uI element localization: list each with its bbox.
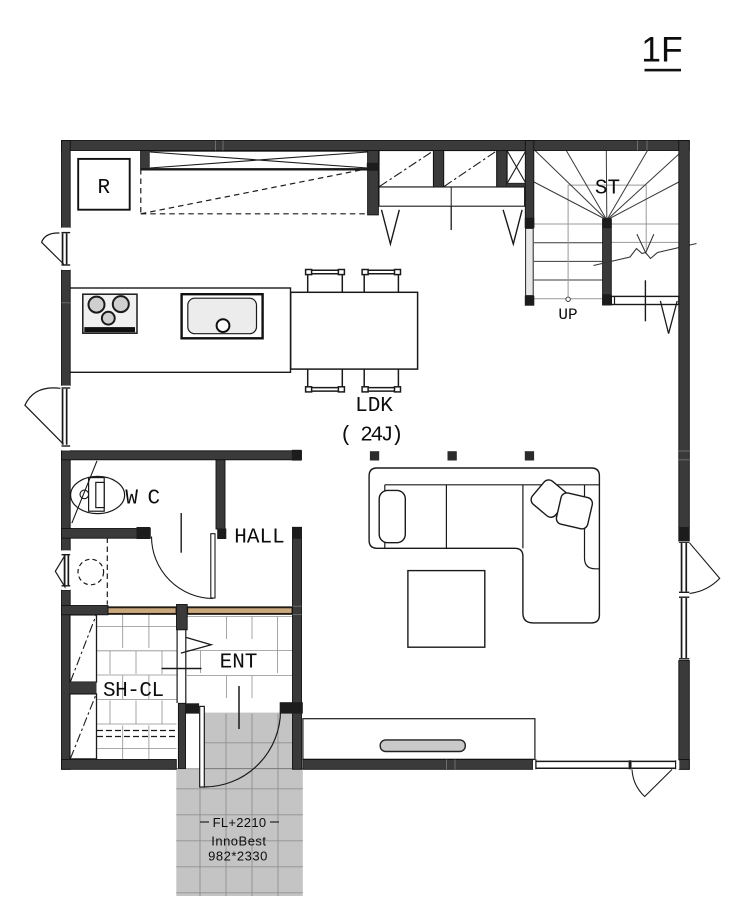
svg-text:R: R — [97, 177, 110, 200]
svg-text:982*2330: 982*2330 — [208, 849, 268, 864]
svg-text:HALL: HALL — [234, 527, 284, 550]
svg-text:ST: ST — [595, 178, 620, 201]
svg-text:1F: 1F — [641, 30, 682, 70]
svg-text:( 24J): ( 24J) — [340, 425, 401, 448]
svg-text:SH-CL: SH-CL — [103, 680, 164, 703]
svg-text:FL+2210: FL+2210 — [213, 815, 267, 830]
svg-text:UP: UP — [558, 306, 577, 324]
svg-text:InnoBest: InnoBest — [211, 834, 266, 849]
svg-text:W C: W C — [125, 488, 159, 511]
svg-text:LDK: LDK — [355, 395, 393, 418]
svg-text:ENT: ENT — [220, 652, 258, 675]
